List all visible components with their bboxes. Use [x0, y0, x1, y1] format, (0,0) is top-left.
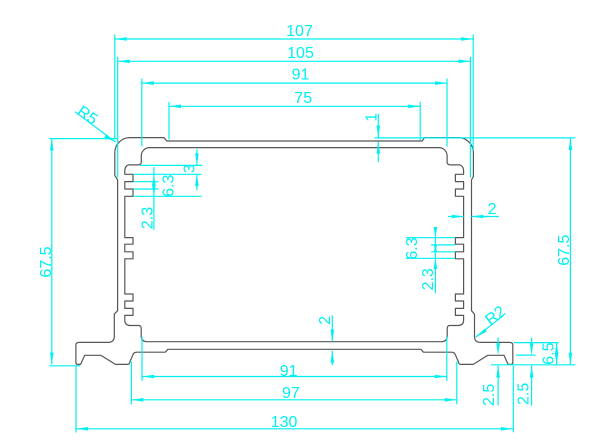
svg-text:2.3: 2.3 — [420, 268, 437, 290]
svg-text:6.5: 6.5 — [540, 342, 557, 364]
svg-text:2.5: 2.5 — [516, 383, 533, 405]
svg-text:3: 3 — [182, 164, 199, 173]
svg-text:1: 1 — [364, 113, 381, 122]
svg-text:91: 91 — [292, 67, 310, 84]
svg-text:91: 91 — [280, 363, 298, 380]
svg-text:2.5: 2.5 — [481, 384, 498, 406]
svg-text:130: 130 — [271, 414, 298, 431]
svg-text:6.3: 6.3 — [161, 174, 178, 196]
svg-text:67.5: 67.5 — [38, 246, 55, 277]
svg-text:105: 105 — [287, 45, 314, 62]
svg-text:2: 2 — [317, 316, 334, 325]
svg-text:107: 107 — [286, 23, 313, 40]
svg-text:67.5: 67.5 — [556, 235, 573, 266]
svg-text:97: 97 — [282, 385, 300, 402]
svg-text:6.3: 6.3 — [404, 237, 421, 259]
svg-text:2.3: 2.3 — [140, 207, 157, 229]
svg-text:2: 2 — [488, 201, 497, 218]
svg-text:75: 75 — [294, 90, 312, 107]
